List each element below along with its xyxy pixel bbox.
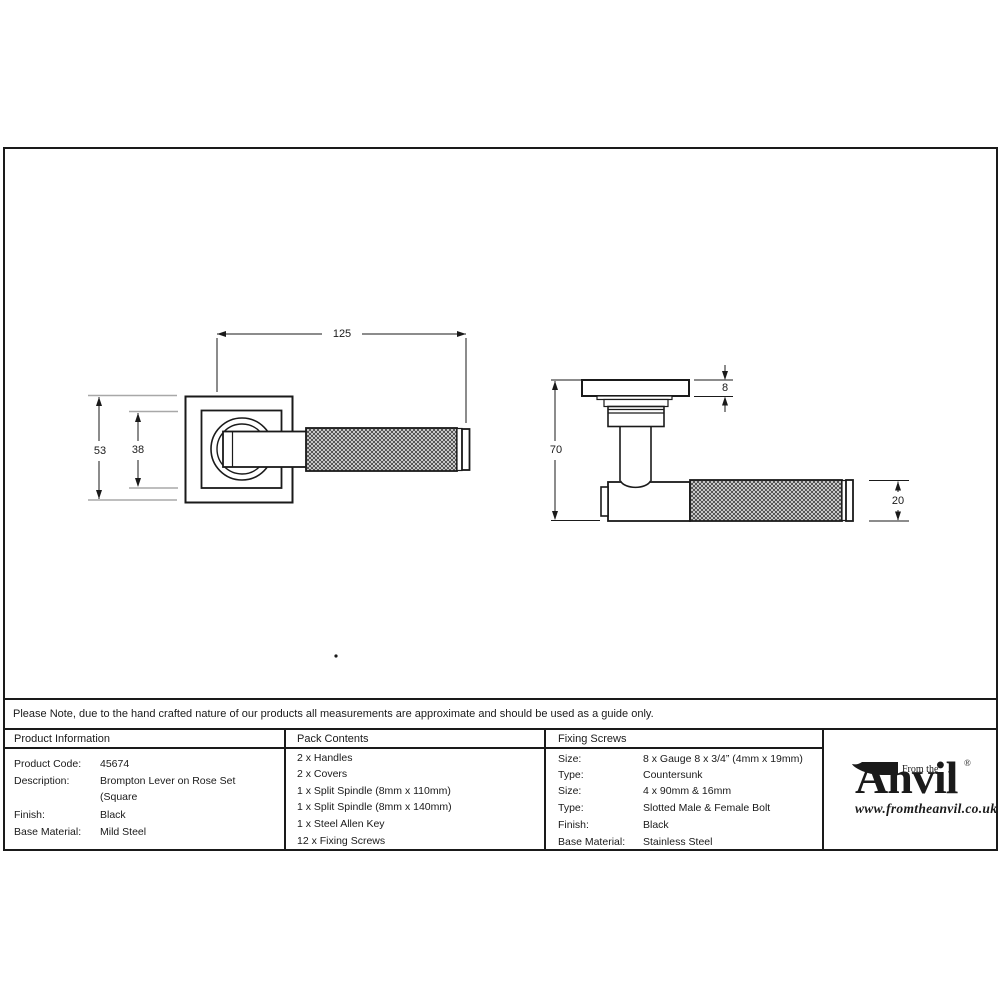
brand-rest: nvil xyxy=(887,752,957,803)
fixing-screws-label: Base Material: xyxy=(558,836,625,848)
pack-contents-item: 1 x Split Spindle (8mm x 110mm) xyxy=(297,785,451,797)
measurement-note: Please Note, due to the hand crafted nat… xyxy=(13,708,654,720)
pack-contents-item: 1 x Steel Allen Key xyxy=(297,818,385,830)
fixing-screws-value: Slotted Male & Female Bolt xyxy=(643,802,770,814)
pack-contents-item: 12 x Fixing Screws xyxy=(297,835,385,847)
product-info-value: Black xyxy=(100,809,126,821)
product-info-label: Base Material: xyxy=(14,826,81,838)
fixing-screws-value: Countersunk xyxy=(643,769,703,781)
pack-contents-item: 1 x Split Spindle (8mm x 140mm) xyxy=(297,801,452,813)
product-info-value: 45674 xyxy=(100,758,129,770)
registered-trademark: ® xyxy=(964,758,971,768)
fixing-screws-label: Type: xyxy=(558,769,584,781)
brand-website: www.fromtheanvil.co.uk xyxy=(855,801,997,817)
product-info-value: (Square xyxy=(100,791,137,803)
fixing-screws-value: 4 x 90mm & 16mm xyxy=(643,785,731,797)
spec-sheet-page: { "note": { "text": "Please Note, due to… xyxy=(0,0,1000,1000)
pack-contents-item: 2 x Handles xyxy=(297,752,352,764)
table-divider-2 xyxy=(544,728,546,851)
fixing-screws-value: 8 x Gauge 8 x 3/4” (4mm x 19mm) xyxy=(643,753,803,765)
pack-contents-item: 2 x Covers xyxy=(297,768,347,780)
product-info-label: Product Code: xyxy=(14,758,81,770)
measurement-note-box: Please Note, due to the hand crafted nat… xyxy=(3,698,998,730)
fixing-screws-label: Type: xyxy=(558,802,584,814)
product-info-label: Finish: xyxy=(14,809,45,821)
product-info-value: Mild Steel xyxy=(100,826,146,838)
brand-initial: A xyxy=(855,752,887,803)
fixing-screws-label: Size: xyxy=(558,785,581,797)
fixing-screws-label: Finish: xyxy=(558,819,589,831)
brand-logo-cell: Anvil From the ◆ ® www.fromtheanvil.co.u… xyxy=(822,728,998,851)
diamond-icon: ◆ xyxy=(948,767,954,776)
table-divider-1 xyxy=(284,728,286,851)
anvil-icon xyxy=(852,762,898,777)
fixing-screws-value: Black xyxy=(643,819,669,831)
table-header-underline xyxy=(3,747,823,749)
product-info-header: Product Information xyxy=(14,733,110,745)
pack-contents-header: Pack Contents xyxy=(297,733,369,745)
fixing-screws-header: Fixing Screws xyxy=(558,733,626,745)
product-info-value: Brompton Lever on Rose Set xyxy=(100,775,235,787)
fixing-screws-value: Stainless Steel xyxy=(643,836,712,848)
product-info-label: Description: xyxy=(14,775,69,787)
brand-tagline: From the xyxy=(902,764,938,775)
fixing-screws-label: Size: xyxy=(558,753,581,765)
